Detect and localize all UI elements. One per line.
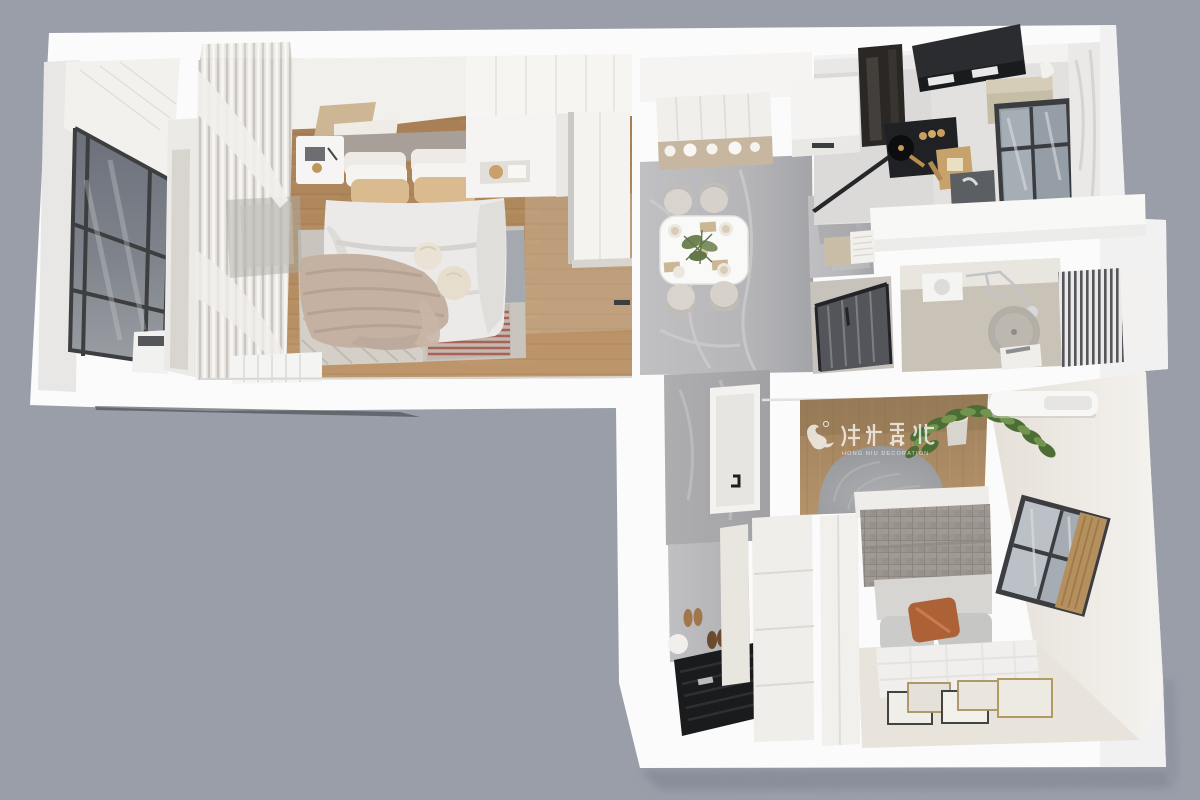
- svg-text:HONG NIU DECORATION: HONG NIU DECORATION: [842, 451, 929, 457]
